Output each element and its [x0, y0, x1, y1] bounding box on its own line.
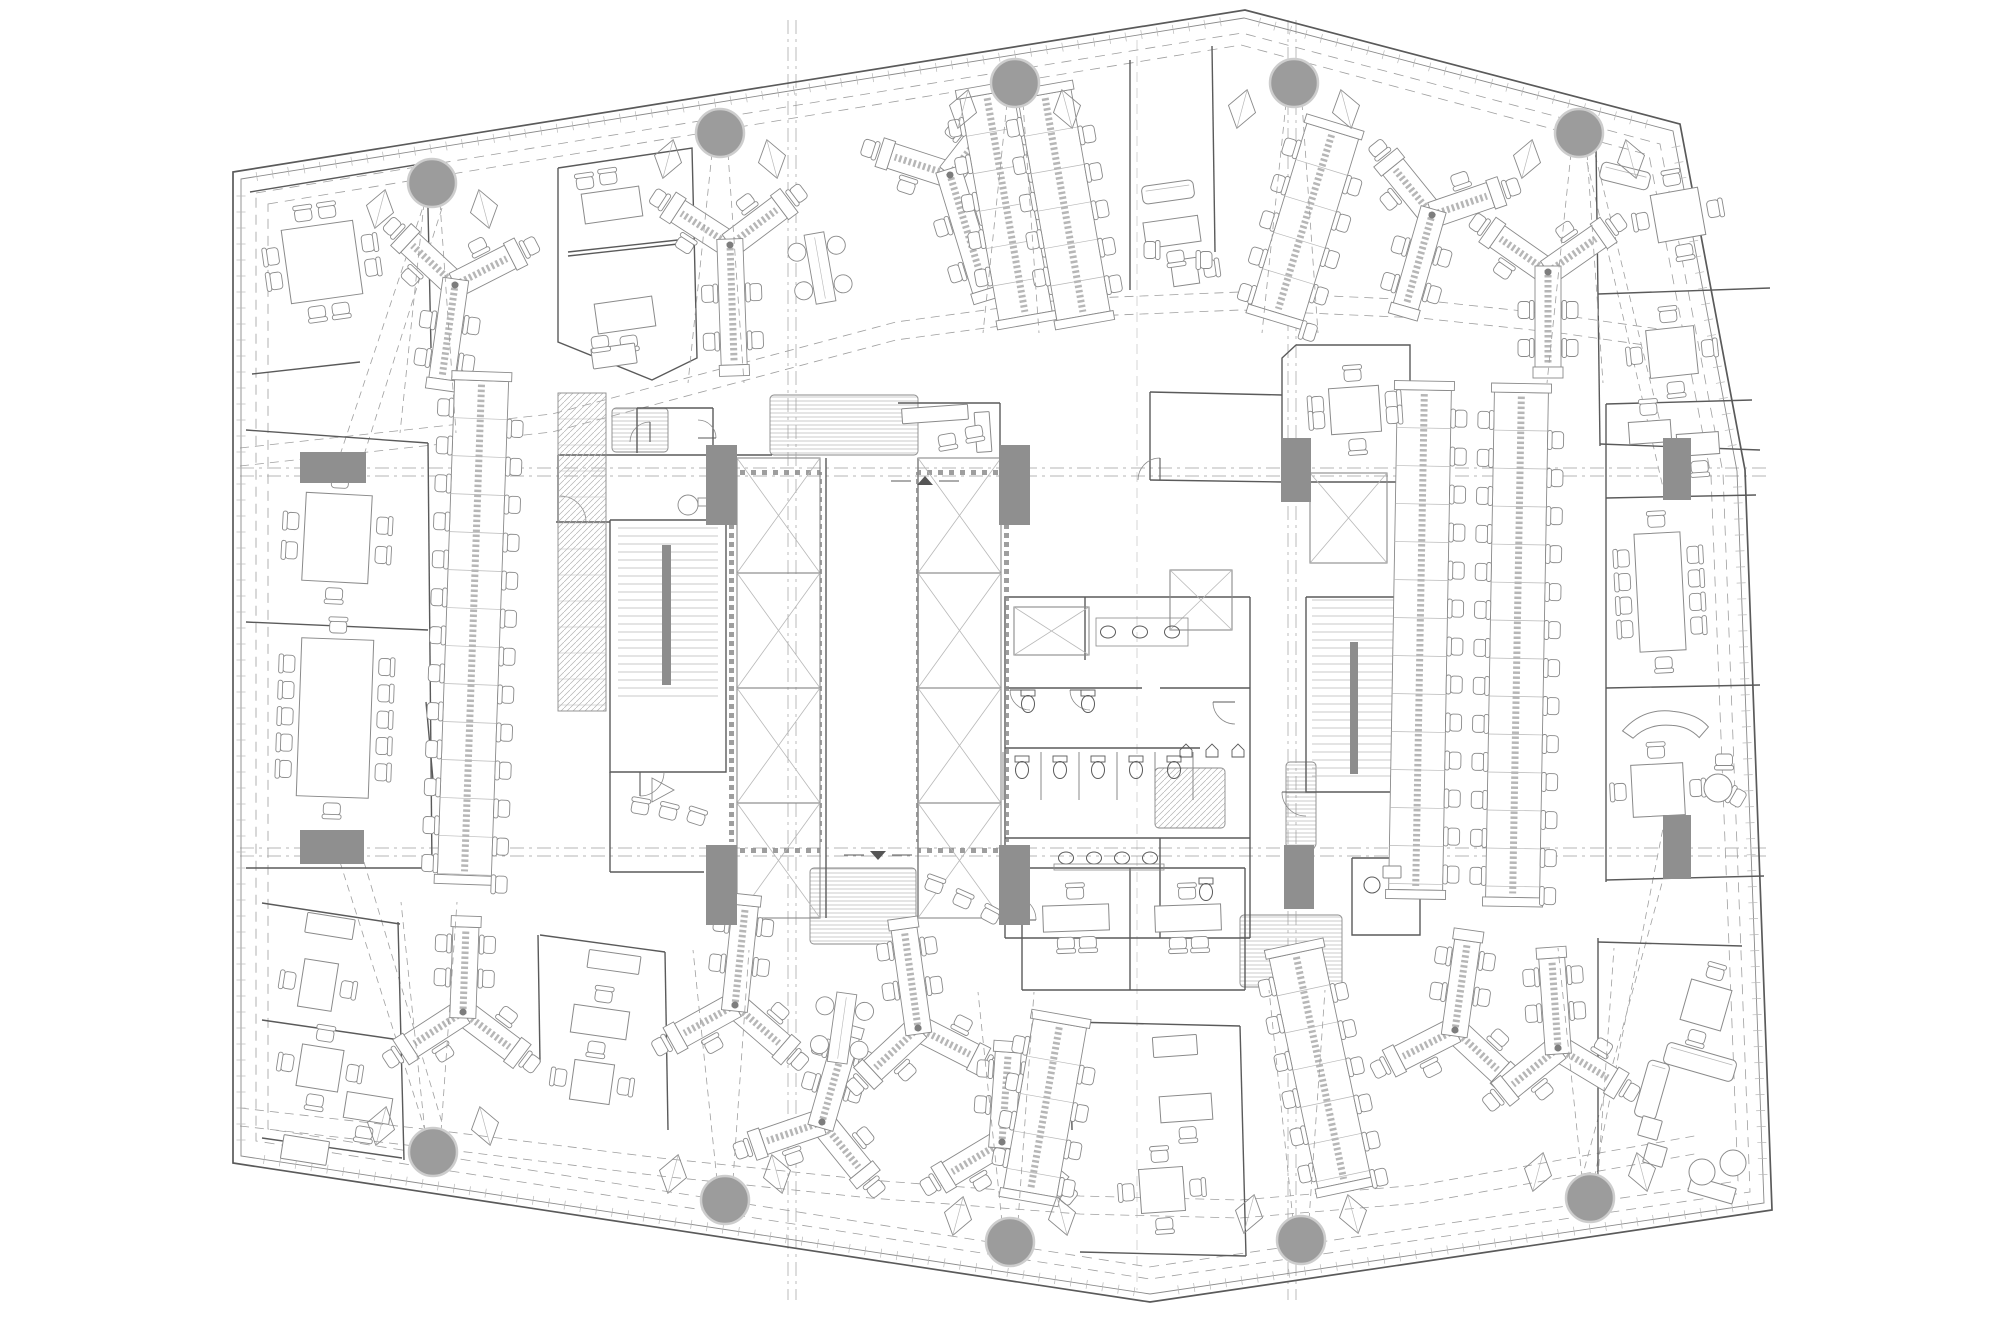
office-chair — [1308, 410, 1325, 430]
office-chair — [1091, 199, 1110, 220]
table-with-chairs — [1621, 301, 1722, 402]
locker-wall — [558, 393, 606, 711]
office-chair — [1474, 600, 1490, 619]
office-chair — [497, 685, 514, 705]
office-chair — [1177, 883, 1197, 900]
office-chair — [1019, 192, 1038, 213]
interior-wall — [250, 163, 427, 192]
office-chair — [436, 436, 453, 456]
office-chair — [499, 647, 516, 667]
office-chair — [278, 680, 295, 700]
tv-rect — [1152, 1034, 1197, 1057]
office-chair — [276, 733, 293, 753]
office-chair — [1289, 1125, 1309, 1147]
round-column — [991, 59, 1039, 107]
round-column — [408, 159, 456, 207]
office-chair — [1077, 1065, 1096, 1086]
interior-wall — [1606, 685, 1760, 688]
interior-wall — [1070, 1022, 1240, 1026]
y-desk-cluster — [376, 913, 559, 1093]
office-chair — [961, 192, 980, 213]
cab-rect — [280, 1135, 329, 1166]
office-chair — [1562, 339, 1578, 358]
office-chair — [925, 975, 943, 996]
office-chair — [428, 663, 445, 683]
elevator-shaft — [1014, 607, 1089, 655]
shaft-tick-band — [918, 845, 1001, 854]
stool — [786, 242, 807, 263]
office-chair — [330, 302, 351, 320]
table-with-chairs — [1608, 740, 1708, 819]
office-chair — [1450, 447, 1466, 466]
interior-wall — [428, 443, 432, 868]
office-chair — [703, 332, 720, 352]
office-chair — [1562, 301, 1578, 320]
office-chair — [1361, 1129, 1381, 1151]
office-chair — [275, 759, 292, 779]
office-chair — [1687, 545, 1704, 565]
office-chair — [1064, 1140, 1083, 1161]
interior-wall — [1598, 288, 1770, 294]
office-chair — [1190, 936, 1210, 953]
urinal-icon — [1180, 744, 1192, 757]
office-chair — [1522, 968, 1539, 988]
elevator-shaft — [737, 688, 820, 803]
shaft-tick-band — [737, 466, 820, 475]
core-column — [1663, 815, 1691, 879]
toilet-icon — [1053, 756, 1067, 779]
office-chair — [1478, 951, 1496, 972]
rug-rect — [1643, 1143, 1668, 1168]
bench-desk-row — [421, 370, 525, 894]
office-chair — [1475, 562, 1491, 581]
office-chair — [590, 335, 611, 353]
office-chair — [1189, 1177, 1206, 1197]
office-chair — [1104, 273, 1123, 294]
office-chair — [1032, 267, 1051, 288]
interior-wall — [1240, 1026, 1246, 1256]
office-chair — [1154, 1217, 1174, 1234]
interior-wall — [538, 935, 540, 1062]
office-chair — [1518, 301, 1534, 320]
office-chair — [292, 204, 313, 222]
stair-handrail — [1350, 642, 1358, 774]
sink-icon — [1101, 626, 1116, 638]
table-with-chairs — [1042, 882, 1110, 954]
office-chair — [378, 657, 395, 677]
interior-wall — [1596, 146, 1600, 446]
office-chair — [1429, 981, 1447, 1002]
office-chair — [478, 969, 495, 989]
office-chair — [1369, 1167, 1389, 1189]
office-chair — [1471, 790, 1487, 809]
office-chair — [1674, 243, 1695, 262]
office-chair — [1525, 1004, 1542, 1024]
stool — [793, 280, 814, 301]
office-chair — [435, 934, 452, 954]
brace-kite — [1519, 1149, 1556, 1195]
office-chair — [1543, 696, 1559, 715]
office-chair — [1447, 637, 1463, 656]
office-chair — [279, 654, 296, 674]
office-chair — [1545, 544, 1561, 563]
stool — [815, 996, 835, 1016]
office-chair — [1631, 211, 1650, 232]
brace-kite — [649, 136, 686, 182]
lift-hall-arrow — [891, 476, 959, 485]
office-chair — [1689, 592, 1706, 612]
table-with-chairs — [1154, 882, 1222, 954]
office-chair — [1474, 638, 1490, 657]
office-chair — [339, 979, 358, 1000]
lift-hall-arrow — [844, 851, 912, 860]
office-chair — [1541, 810, 1557, 829]
office-chair — [1346, 1055, 1366, 1077]
office-chair — [1690, 616, 1707, 636]
office-chair — [1518, 339, 1534, 358]
office-chair — [435, 474, 452, 494]
office-chair — [1473, 676, 1489, 695]
office-chair — [964, 424, 985, 443]
elevator-shaft — [918, 573, 1001, 688]
office-chair — [1265, 1014, 1285, 1036]
office-chair — [353, 1125, 374, 1144]
office-chair — [1688, 568, 1705, 588]
office-chair — [593, 985, 614, 1003]
office-chair — [503, 533, 520, 553]
shaft-tick-band — [727, 470, 736, 842]
sink-icon — [1059, 852, 1074, 864]
table-with-chairs — [1159, 1093, 1214, 1145]
office-chair — [1476, 524, 1492, 543]
office-chair — [322, 803, 342, 820]
office-chair — [376, 516, 393, 536]
office-chair — [1165, 249, 1186, 267]
office-chair — [265, 271, 283, 292]
office-chair — [1443, 865, 1459, 884]
office-chair — [1025, 229, 1044, 250]
office-chair — [1540, 848, 1556, 867]
office-chair — [429, 625, 446, 645]
office-chair — [1715, 754, 1734, 770]
office-chair — [756, 917, 774, 938]
elevator-shaft — [737, 458, 820, 573]
office-chair — [974, 267, 993, 288]
office-chair — [951, 888, 975, 910]
core-column — [999, 845, 1030, 925]
floor-plan-svg — [0, 0, 2000, 1317]
office-chair — [1281, 1088, 1301, 1110]
office-chair — [492, 837, 509, 857]
rug-rect — [1638, 1116, 1663, 1141]
toilet-icon — [1199, 878, 1213, 901]
office-chair — [1470, 866, 1486, 885]
office-chair — [1566, 965, 1583, 985]
office-chair — [501, 571, 518, 591]
interior-wall — [1598, 942, 1742, 946]
shaft-tick-band — [910, 472, 918, 842]
core-column — [706, 445, 737, 525]
round-column — [696, 109, 744, 157]
office-chair — [1661, 168, 1682, 187]
core-column — [300, 452, 366, 483]
column-dashed-v — [1587, 153, 1603, 383]
office-chair — [413, 347, 431, 368]
office-chair — [1057, 1177, 1076, 1198]
shaft-tick-band — [820, 472, 828, 842]
office-chair — [1084, 161, 1103, 182]
office-chair — [1547, 431, 1563, 450]
column-brace-dashed-line — [364, 862, 443, 1126]
office-chair — [1614, 572, 1631, 592]
office-chair — [505, 457, 522, 477]
y-desk-cluster — [634, 164, 818, 379]
office-chair — [1544, 620, 1560, 639]
round-column — [986, 1218, 1034, 1266]
sofa-rect — [1141, 179, 1195, 204]
plan-markers — [652, 476, 1380, 893]
office-chair — [427, 701, 444, 721]
office-chair — [1613, 549, 1630, 569]
toilet-icon — [1015, 756, 1029, 779]
urinal-icon — [1206, 744, 1218, 757]
column-dashed-v — [693, 950, 717, 1180]
office-chair — [1690, 460, 1710, 477]
table-with-chairs — [1627, 398, 1672, 445]
office-chair — [1569, 1001, 1586, 1021]
office-chair — [1472, 752, 1488, 771]
office-chair — [1706, 198, 1725, 219]
office-chair — [1078, 124, 1097, 145]
stair — [1312, 600, 1400, 776]
office-chair — [276, 1052, 295, 1073]
office-chair — [1342, 364, 1362, 381]
office-chair — [923, 873, 946, 895]
restroom-fixtures — [1003, 618, 1244, 901]
brace-kite — [465, 186, 502, 232]
round-column — [1270, 59, 1318, 107]
office-chair — [1178, 1126, 1198, 1143]
office-chair — [1097, 236, 1116, 257]
office-chair — [315, 1024, 336, 1043]
office-chair — [616, 1076, 634, 1097]
office-chair — [1434, 945, 1452, 966]
table-with-chairs — [1674, 958, 1738, 1052]
office-chair — [1476, 486, 1492, 505]
office-chair — [493, 799, 510, 819]
interior-wall — [1212, 46, 1215, 252]
office-chair — [967, 229, 986, 250]
office-chair — [1625, 346, 1643, 367]
office-chair — [1470, 828, 1486, 847]
office-chair — [1449, 485, 1465, 504]
office-chair — [1449, 523, 1465, 542]
office-chair — [685, 806, 708, 827]
column-dashed-v — [401, 902, 425, 1132]
cab-rect — [1383, 866, 1401, 878]
pouf — [1720, 1150, 1746, 1176]
office-chair — [895, 175, 918, 196]
table-with-chairs — [1305, 362, 1405, 458]
office-chair — [745, 282, 762, 302]
round-table — [1704, 774, 1732, 802]
table-with-chairs — [1611, 509, 1709, 675]
brace-kite — [939, 1193, 976, 1239]
office-chair — [425, 739, 442, 759]
office-chair — [500, 609, 517, 629]
office-chair — [1543, 658, 1559, 677]
office-chair — [1078, 936, 1098, 953]
office-chair — [630, 797, 651, 816]
office-chair — [1610, 782, 1627, 802]
office-chair — [375, 545, 392, 565]
interior-wall — [1150, 392, 1282, 395]
office-chair — [421, 853, 438, 873]
office-chair — [375, 763, 392, 783]
stool — [854, 1001, 874, 1021]
table-with-chairs — [1115, 1143, 1209, 1237]
pouf — [1689, 1159, 1715, 1185]
office-chair — [1646, 742, 1666, 759]
office-chair — [1477, 448, 1493, 467]
bridge-deck — [770, 395, 918, 455]
office-chair — [1541, 772, 1557, 791]
brace-kite — [1223, 86, 1260, 132]
office-chair — [954, 155, 973, 176]
office-chair — [1196, 251, 1212, 270]
office-chair — [1273, 1051, 1293, 1073]
bridge-deck — [612, 408, 668, 452]
office-chair — [419, 309, 437, 330]
office-chair — [361, 232, 379, 253]
brace-kite — [1508, 136, 1545, 182]
office-chair — [1615, 596, 1632, 616]
office-chair — [1065, 883, 1085, 900]
office-chair — [860, 138, 881, 161]
office-chair — [1445, 713, 1461, 732]
sink-icon — [1115, 852, 1130, 864]
office-chair — [1149, 1145, 1169, 1162]
curved-sofa — [1621, 708, 1709, 743]
office-chair — [1012, 155, 1031, 176]
office-chair — [586, 1040, 607, 1058]
office-chair — [376, 736, 393, 756]
bridge-deck — [1286, 762, 1316, 848]
office-chair — [752, 957, 770, 978]
office-chair — [433, 512, 450, 532]
office-chair — [1004, 1071, 1023, 1092]
office-chair — [1443, 827, 1459, 846]
office-chair — [549, 1067, 567, 1088]
interior-wall — [540, 935, 665, 952]
office-chair — [881, 981, 899, 1002]
interior-wall — [246, 430, 428, 443]
table-with-chairs — [548, 1056, 637, 1107]
office-chair — [262, 246, 280, 267]
office-chair — [1168, 937, 1188, 954]
table-with-chairs — [276, 955, 361, 1015]
office-chair — [424, 777, 441, 797]
stair-handrail — [662, 545, 671, 685]
office-chair — [1330, 981, 1350, 1003]
office-chair — [1666, 381, 1687, 399]
office-chair — [1353, 1092, 1373, 1114]
office-chair — [1056, 937, 1076, 954]
core-column — [1284, 845, 1314, 909]
office-chair — [1616, 619, 1633, 639]
office-chair — [1545, 582, 1561, 601]
office-chair — [1542, 734, 1558, 753]
brace-kite — [753, 136, 790, 182]
core-column — [706, 845, 737, 925]
office-chair — [324, 587, 344, 604]
core-column — [1663, 438, 1691, 500]
core-column — [300, 830, 364, 864]
brace-kite — [466, 1103, 503, 1149]
office-chair — [1473, 987, 1491, 1008]
office-chair — [1704, 961, 1727, 982]
office-chair — [1117, 1182, 1134, 1202]
office-chair — [1005, 117, 1024, 138]
office-chair — [282, 511, 299, 531]
bridge-deck — [1155, 768, 1225, 828]
round-column — [1277, 1216, 1325, 1264]
office-chair — [495, 761, 512, 781]
office-chair — [1547, 468, 1563, 487]
bench-desk-row — [1231, 110, 1377, 343]
office-chair — [277, 706, 294, 726]
interior-wall — [1080, 1252, 1246, 1256]
office-chair — [496, 723, 513, 743]
office-chair — [1011, 1034, 1030, 1055]
office-chair — [998, 1109, 1017, 1130]
office-chair — [1451, 409, 1467, 428]
office-chair — [1445, 751, 1461, 770]
office-chair — [479, 935, 496, 955]
office-chair — [1646, 511, 1666, 528]
table-with-chairs — [567, 982, 632, 1061]
sink-icon — [1087, 852, 1102, 864]
office-chair — [747, 330, 764, 350]
office-chair — [876, 941, 894, 962]
office-chair — [708, 953, 726, 974]
round-column — [409, 1128, 457, 1176]
toilet-icon — [1021, 690, 1035, 713]
sink-icon — [1133, 626, 1148, 638]
door-swing — [1070, 690, 1090, 710]
interior-wall — [1606, 400, 1752, 404]
stair — [618, 528, 718, 696]
brace-kite — [1334, 1191, 1371, 1237]
door-swing — [1213, 702, 1235, 724]
office-chair — [1658, 305, 1679, 323]
floor-drain-icon — [678, 495, 698, 515]
fixtures-layer — [560, 420, 1400, 920]
pantry-sink-icon — [1364, 877, 1380, 893]
office-chair — [432, 550, 449, 570]
office-chair — [491, 875, 508, 895]
office-chair — [434, 967, 451, 987]
shaft-tick-band — [737, 845, 820, 854]
office-chair — [1638, 398, 1658, 415]
core-column — [1281, 438, 1311, 502]
office-chair — [701, 284, 718, 304]
office-chair — [431, 588, 448, 608]
office-chair — [1478, 410, 1494, 429]
office-chair — [1070, 1102, 1089, 1123]
office-chair — [1654, 656, 1674, 673]
office-chair — [1386, 405, 1403, 425]
